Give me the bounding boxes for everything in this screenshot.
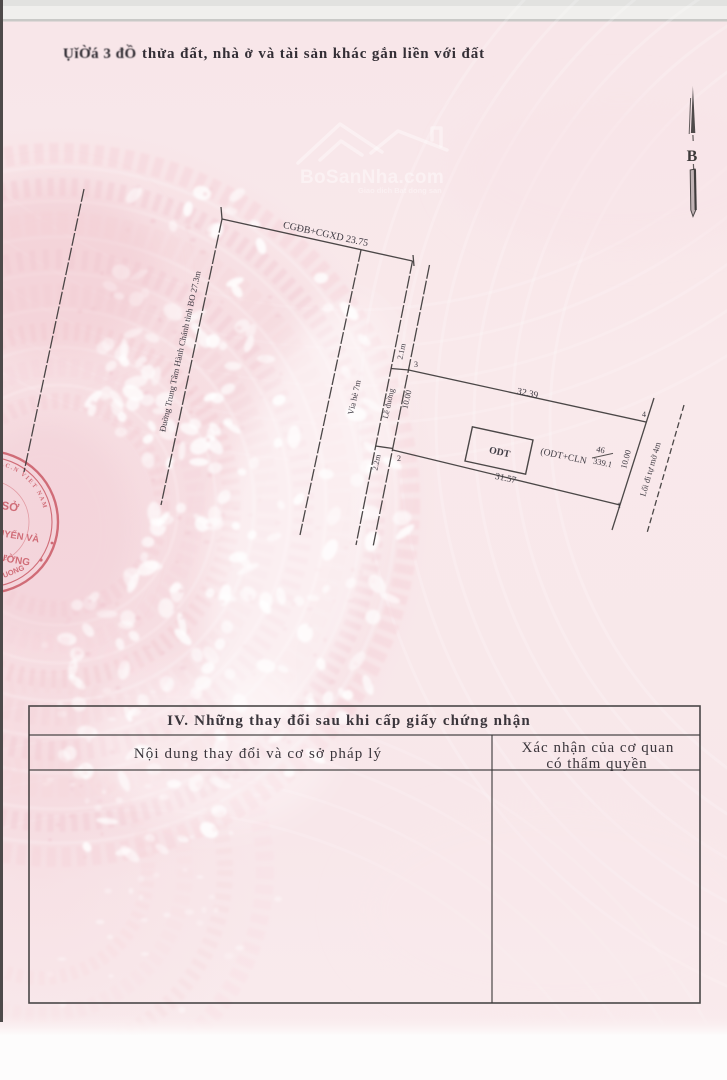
svg-text:B: B [687,148,698,165]
svg-text:SỞ: SỞ [1,499,20,515]
svg-text:Giao dich Bat dong san: Giao dich Bat dong san [358,186,442,195]
svg-text:1: 1 [617,501,621,510]
svg-text:Nội dung thay đổi và cơ sở phá: Nội dung thay đổi và cơ sở pháp lý [134,746,382,762]
svg-text:ỤǐỜá 3 đỒ: ỤǐỜá 3 đỒ [63,44,137,62]
svg-text:IV. Những thay đổi sau khi cấp: IV. Những thay đổi sau khi cấp giấy chứn… [167,713,531,729]
svg-text:BoSanNha.com: BoSanNha.com [300,167,444,188]
svg-text:2: 2 [397,454,401,463]
svg-text:4: 4 [642,410,646,419]
svg-text:có thẩm quyền: có thẩm quyền [546,756,647,772]
svg-text:Xác nhận của cơ quan: Xác nhận của cơ quan [522,740,675,756]
svg-text:thửa đất, nhà ở và tài sản khá: thửa đất, nhà ở và tài sản khác gắn liền… [142,46,485,62]
svg-text:3: 3 [414,360,418,369]
